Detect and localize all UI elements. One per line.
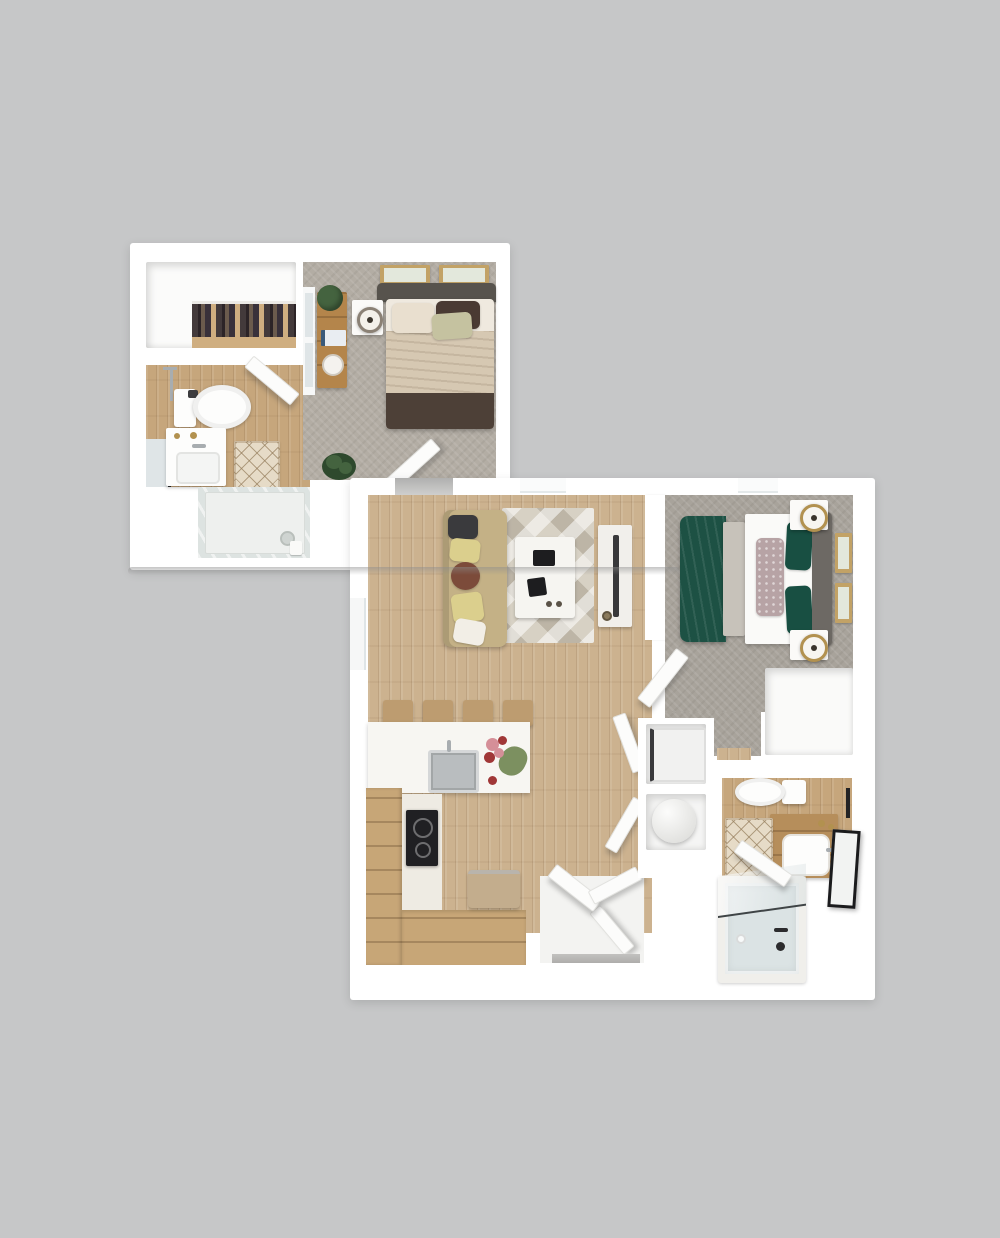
kitchen-bench bbox=[468, 870, 520, 908]
sofa-pillow-dark bbox=[448, 515, 478, 539]
washer bbox=[650, 728, 706, 782]
bed-2 bbox=[680, 514, 832, 644]
water-heater bbox=[652, 799, 696, 843]
media-player bbox=[602, 611, 612, 621]
wall-art-canvas bbox=[384, 268, 426, 282]
headboard-2 bbox=[812, 512, 832, 646]
shower-bar bbox=[170, 367, 173, 401]
coffee-table-remote bbox=[527, 577, 547, 597]
bathtub bbox=[718, 876, 806, 983]
entry-threshold bbox=[552, 954, 640, 963]
wall-art-1b bbox=[439, 265, 489, 285]
pillow-green-bottom bbox=[785, 585, 813, 634]
coffee-table-book bbox=[533, 550, 555, 566]
nightstand-2a bbox=[790, 500, 828, 530]
flower-red bbox=[488, 776, 497, 785]
shower-stall bbox=[198, 487, 310, 558]
toilet-1-bowl bbox=[193, 385, 251, 429]
closet-rod bbox=[192, 301, 296, 304]
faucet-1 bbox=[192, 444, 206, 448]
books bbox=[321, 330, 346, 346]
kitchen-cabinet-bottom bbox=[402, 910, 526, 965]
tv bbox=[613, 535, 619, 617]
wall-patch bbox=[638, 852, 722, 878]
wall-art-2b bbox=[835, 583, 852, 623]
tub-faucet bbox=[774, 928, 788, 932]
coffee-cup bbox=[556, 601, 562, 607]
foot-bench bbox=[723, 522, 745, 636]
bedroom-2-window bbox=[738, 478, 778, 493]
kitchen-island bbox=[368, 722, 530, 793]
sofa bbox=[443, 510, 507, 647]
leaning-mirror bbox=[827, 829, 860, 909]
kitchen-cabinet-left bbox=[366, 788, 402, 965]
bedroom-2-threshold bbox=[717, 748, 751, 760]
wall-art-1a bbox=[380, 265, 430, 285]
bed-2-duvet bbox=[680, 516, 726, 642]
walk-in-closet bbox=[146, 262, 296, 348]
coffee-table bbox=[515, 537, 575, 618]
window-pane bbox=[305, 293, 313, 337]
floor-plant bbox=[322, 453, 356, 480]
sofa-pillow-yellow bbox=[449, 537, 481, 563]
clothes-rack bbox=[192, 303, 296, 337]
window-pane bbox=[305, 343, 313, 387]
upper-unit-doorway-threshold bbox=[395, 478, 453, 495]
shower-head bbox=[163, 367, 177, 370]
flower-red bbox=[498, 736, 507, 745]
sink-1 bbox=[176, 452, 220, 484]
wall-art-canvas bbox=[838, 587, 849, 619]
paper-edge bbox=[128, 567, 680, 575]
tub-handle bbox=[776, 942, 785, 951]
bed-1-foot-throw bbox=[386, 393, 494, 429]
wall-art-canvas bbox=[443, 268, 485, 282]
flower-pink bbox=[494, 748, 504, 758]
soap-dish bbox=[174, 433, 180, 439]
wall-art-canvas bbox=[838, 537, 849, 569]
kitchen-faucet bbox=[447, 740, 451, 752]
washer-closet bbox=[646, 724, 706, 784]
living-side-window bbox=[350, 598, 366, 670]
tub-drain bbox=[736, 934, 746, 944]
nightstand-1 bbox=[352, 300, 383, 335]
bedroom-2-closet bbox=[765, 668, 853, 755]
sofa-pillow-white bbox=[452, 617, 487, 646]
floor-plan bbox=[0, 0, 1000, 1238]
toilet-2-bowl bbox=[735, 778, 785, 806]
pillow-sage bbox=[431, 312, 473, 341]
table-lamp-2b bbox=[800, 634, 828, 662]
toilet-2-tank bbox=[782, 780, 806, 804]
pillow-cream bbox=[392, 303, 434, 333]
burner bbox=[413, 818, 433, 838]
coffee-cup bbox=[546, 601, 552, 607]
vanity-1 bbox=[166, 428, 226, 486]
table-lamp-2a bbox=[800, 504, 828, 532]
burner bbox=[415, 842, 431, 858]
flower-bouquet bbox=[480, 736, 538, 784]
decor-tray bbox=[322, 354, 344, 376]
potted-plant bbox=[317, 285, 343, 311]
water-heater-closet bbox=[646, 794, 706, 850]
cooktop bbox=[406, 810, 438, 866]
shampoo-caddy bbox=[290, 541, 302, 555]
kitchen-sink bbox=[428, 750, 479, 793]
living-window bbox=[520, 478, 566, 493]
soap-dish bbox=[190, 432, 197, 439]
bed-1-blanket bbox=[386, 331, 494, 395]
lumbar-pillow bbox=[756, 538, 784, 616]
bedroom-1-window bbox=[303, 287, 315, 395]
floor-plant-leaves bbox=[339, 462, 352, 474]
nightstand-2b bbox=[790, 630, 828, 660]
lower-unit bbox=[350, 478, 875, 1000]
bed-1 bbox=[386, 299, 494, 429]
tv-console bbox=[598, 525, 632, 627]
table-lamp-1 bbox=[357, 307, 383, 333]
wall-art-2a bbox=[835, 533, 852, 573]
towel-bar bbox=[846, 788, 850, 818]
soap-dish bbox=[818, 820, 825, 827]
console-table bbox=[317, 292, 347, 388]
